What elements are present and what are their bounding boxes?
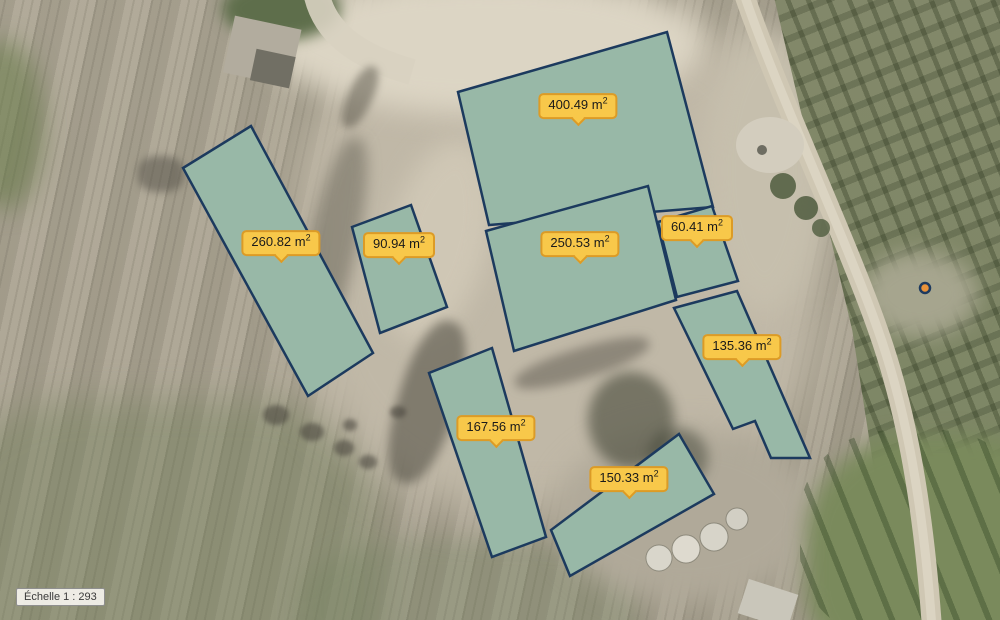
area-unit-exponent: 2	[605, 234, 610, 244]
map-viewport[interactable]: 400.49 m2260.82 m290.94 m2250.53 m260.41…	[0, 0, 1000, 620]
measure-250-53-label: 250.53 m2	[540, 231, 619, 257]
label-pointer	[392, 251, 406, 265]
label-pointer	[622, 485, 636, 499]
area-unit-exponent: 2	[767, 337, 772, 347]
area-unit-exponent: 2	[718, 218, 723, 228]
area-unit-exponent: 2	[654, 469, 659, 479]
area-value: 90.94 m	[373, 236, 420, 251]
label-pointer	[489, 434, 503, 448]
area-unit-exponent: 2	[420, 235, 425, 245]
measure-135-36-label: 135.36 m2	[702, 334, 781, 360]
measure-167-56-label: 167.56 m2	[456, 415, 535, 441]
measure-260-82-label: 260.82 m2	[241, 230, 320, 256]
area-value: 400.49 m	[548, 97, 602, 112]
label-pointer	[571, 112, 585, 126]
area-value: 250.53 m	[550, 235, 604, 250]
scale-indicator: Échelle 1 : 293	[16, 588, 105, 606]
area-unit-exponent: 2	[521, 418, 526, 428]
area-unit-exponent: 2	[306, 233, 311, 243]
label-pointer	[735, 353, 749, 367]
label-pointer	[573, 250, 587, 264]
measure-400-49-label: 400.49 m2	[538, 93, 617, 119]
measure-60-41-label: 60.41 m2	[661, 215, 733, 241]
measure-150-33-label: 150.33 m2	[589, 466, 668, 492]
label-pointer	[274, 249, 288, 263]
area-value: 150.33 m	[599, 470, 653, 485]
area-value: 260.82 m	[251, 234, 305, 249]
area-value: 60.41 m	[671, 219, 718, 234]
area-unit-exponent: 2	[603, 96, 608, 106]
measurement-labels: 400.49 m2260.82 m290.94 m2250.53 m260.41…	[0, 0, 1000, 620]
label-pointer	[690, 234, 704, 248]
area-value: 135.36 m	[712, 338, 766, 353]
area-value: 167.56 m	[466, 419, 520, 434]
measure-90-94-label: 90.94 m2	[363, 232, 435, 258]
